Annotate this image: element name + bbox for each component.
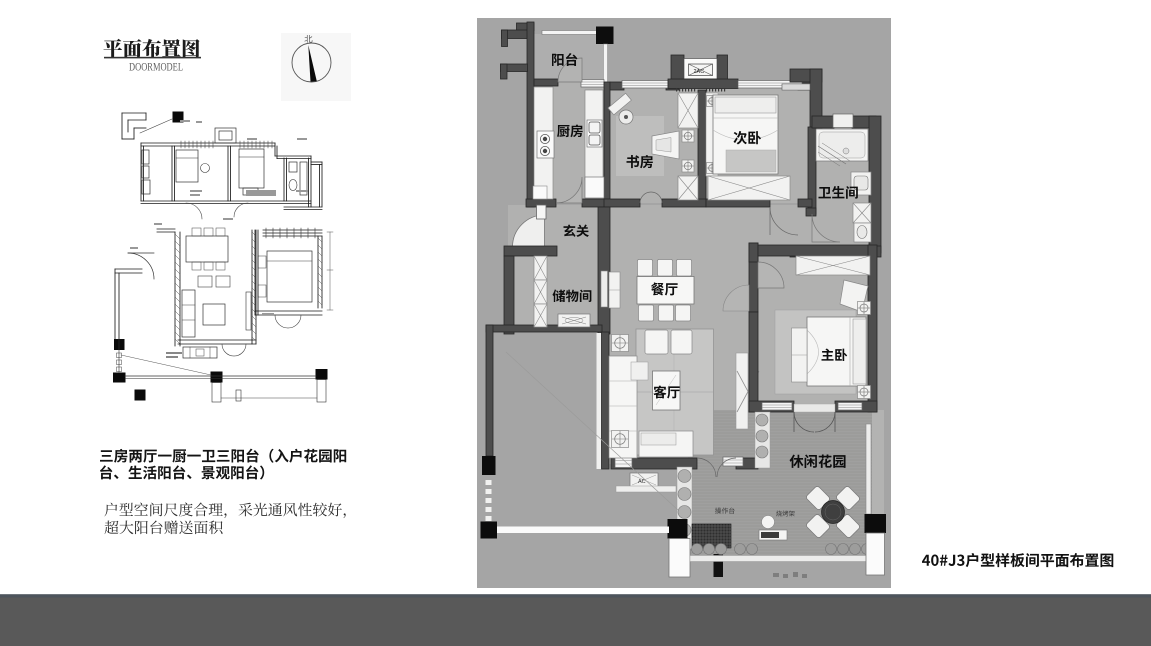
- svg-text:DOORMODEL: DOORMODEL: [129, 62, 183, 74]
- svg-text:2AC: 2AC: [694, 69, 705, 75]
- svg-text:AC: AC: [638, 479, 646, 485]
